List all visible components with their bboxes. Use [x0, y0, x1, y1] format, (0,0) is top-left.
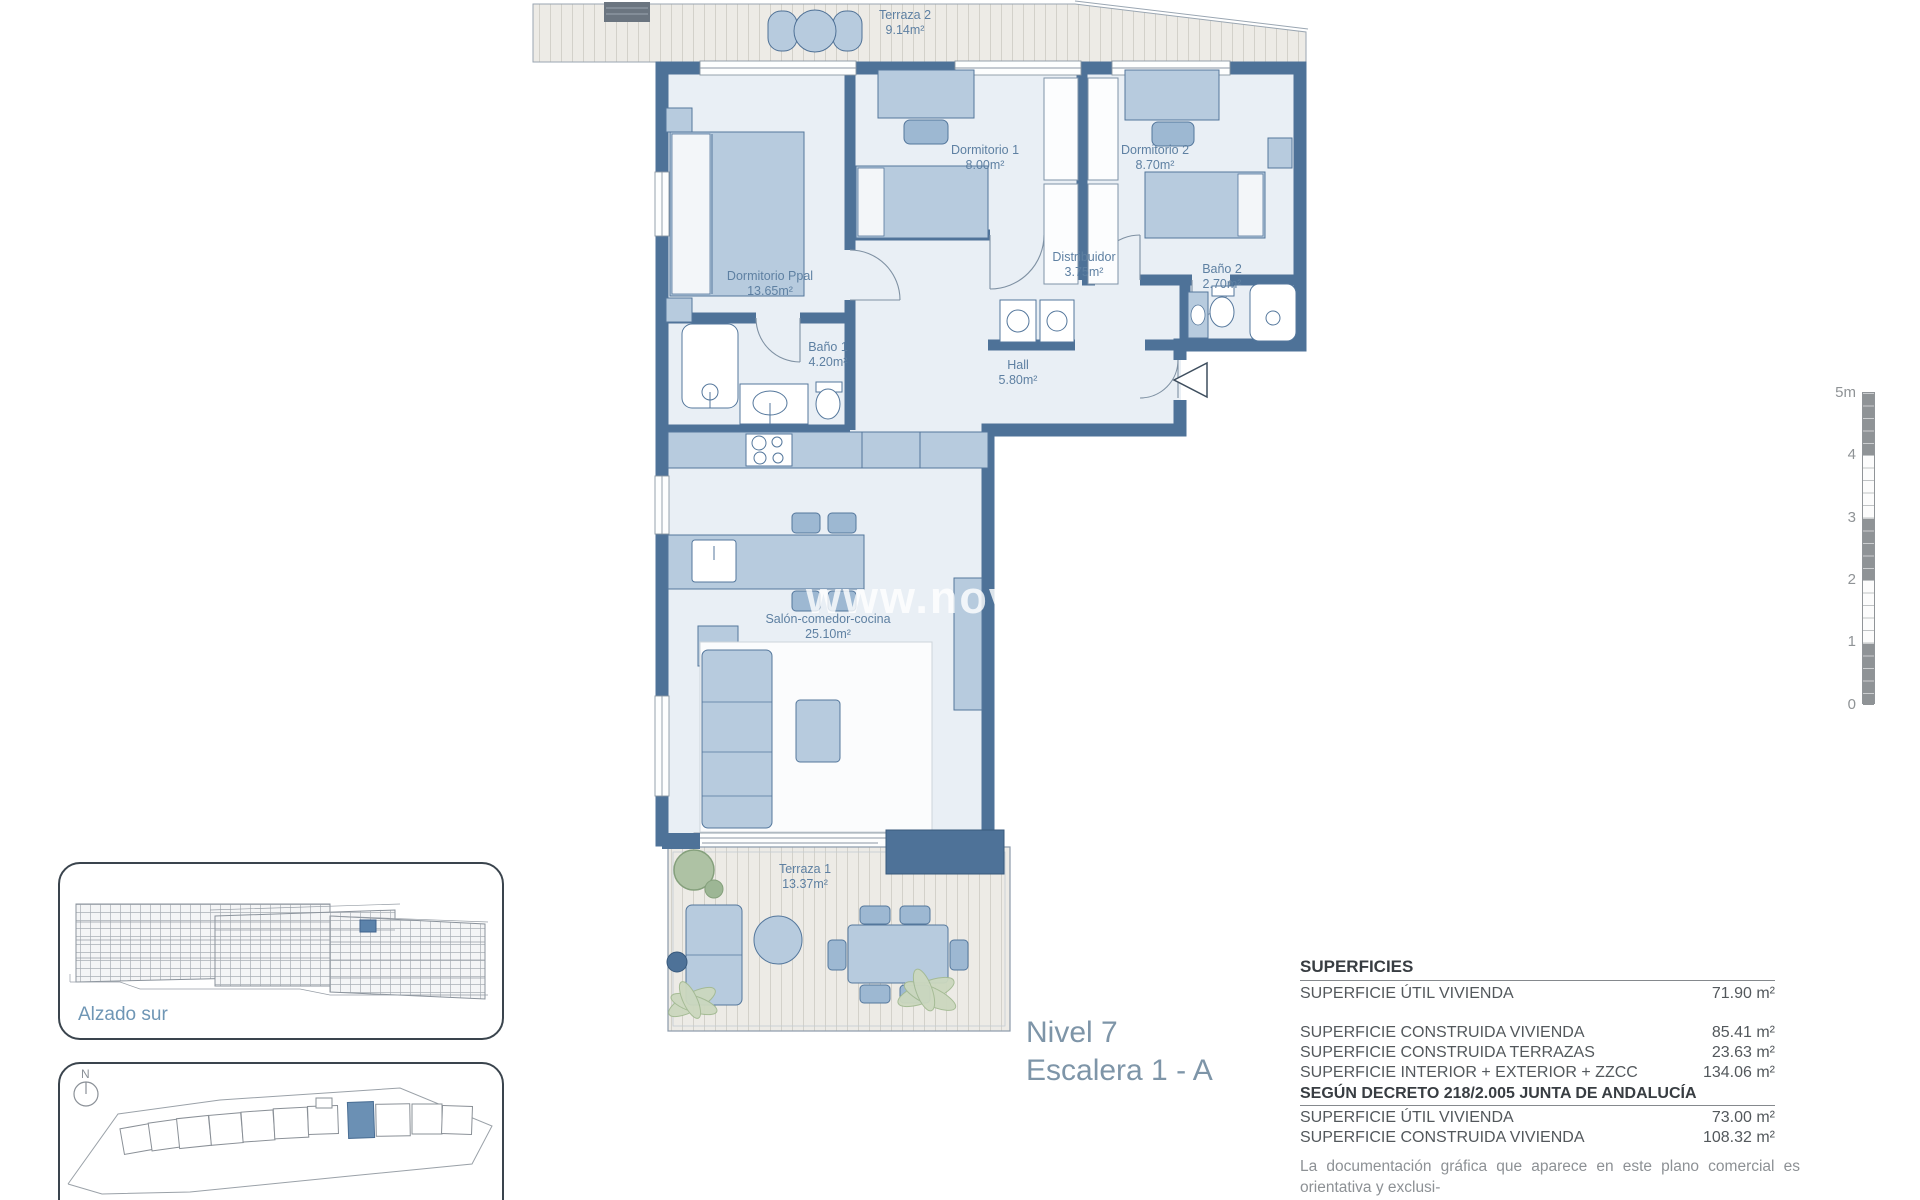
- surface-row: SUPERFICIE CONSTRUIDA VIVIENDA 108.32 m²: [1300, 1128, 1775, 1148]
- surfaces-title: SUPERFICIES: [1300, 957, 1775, 981]
- unit-stair: Escalera 1 - A: [1026, 1052, 1213, 1090]
- surface-row: SUPERFICIE CONSTRUIDA TERRAZAS 23.63 m²: [1300, 1043, 1775, 1063]
- highlighted-unit: [347, 1102, 374, 1139]
- room-label-bano-1: Baño 14.20m²: [808, 340, 848, 369]
- scale-label: 2: [1820, 571, 1856, 588]
- surface-row: SUPERFICIE ÚTIL VIVIENDA 71.90 m²: [1300, 984, 1775, 1004]
- surface-value: 23.63 m²: [1712, 1043, 1775, 1063]
- surfaces-panel: SUPERFICIES SUPERFICIE ÚTIL VIVIENDA 71.…: [1300, 957, 1775, 1148]
- surface-row: SUPERFICIE ÚTIL VIVIENDA 73.00 m²: [1300, 1108, 1775, 1128]
- surface-value: 85.41 m²: [1712, 1023, 1775, 1043]
- surface-label: SUPERFICIE CONSTRUIDA TERRAZAS: [1300, 1043, 1595, 1063]
- siteplan-box: N: [58, 1062, 504, 1200]
- surface-label: SUPERFICIE CONSTRUIDA VIVIENDA: [1300, 1128, 1585, 1148]
- scale-label: 3: [1820, 509, 1856, 526]
- room-label-hall: Hall5.80m²: [999, 358, 1038, 387]
- siteplan-drawing: N: [60, 1064, 500, 1200]
- room-label-bano-2: Baño 22.70m²: [1202, 262, 1242, 291]
- terrace-chair: [833, 11, 862, 51]
- room-label-terraza-2: Terraza 29.14m²: [879, 8, 931, 37]
- elevation-box: Alzado sur: [58, 862, 504, 1040]
- terrace-chair: [768, 11, 797, 51]
- surface-label: SUPERFICIE ÚTIL VIVIENDA: [1300, 1108, 1514, 1128]
- scale-label: 0: [1820, 696, 1856, 713]
- room-label-distribuidor: Distribuidor3.75m²: [1052, 250, 1115, 279]
- plant: [705, 880, 723, 898]
- disclaimer-line: La documentación gráfica que aparece en …: [1300, 1156, 1800, 1198]
- surface-value: 108.32 m²: [1703, 1128, 1775, 1148]
- room-label-dormitorio-1: Dormitorio 18.00m²: [951, 143, 1019, 172]
- surface-label: SUPERFICIE INTERIOR + EXTERIOR + ZZCC: [1300, 1063, 1638, 1083]
- terrace-table: [794, 10, 836, 52]
- deck-planter: [604, 2, 650, 22]
- page: Terraza 29.14m² Dormitorio Ppal13.65m² D…: [0, 0, 1920, 1200]
- highlighted-unit: [360, 920, 376, 932]
- surface-label: SUPERFICIE CONSTRUIDA VIVIENDA: [1300, 1023, 1585, 1043]
- surface-value: 73.00 m²: [1712, 1108, 1775, 1128]
- room-label-dormitorio-ppal: Dormitorio Ppal13.65m²: [727, 269, 813, 298]
- surface-value: 134.06 m²: [1703, 1063, 1775, 1083]
- room-label-dormitorio-2: Dormitorio 28.70m²: [1121, 143, 1189, 172]
- scale-label: 4: [1820, 446, 1856, 463]
- terraza-1-deck: [662, 830, 1010, 1031]
- surface-row: SUPERFICIE CONSTRUIDA VIVIENDA 85.41 m²: [1300, 1023, 1775, 1043]
- compass-icon: [74, 1082, 98, 1106]
- room-label-terraza-1: Terraza 113.37m²: [779, 862, 831, 891]
- scale-bar: [1862, 392, 1875, 704]
- scale-label: 5m: [1820, 384, 1856, 401]
- watermark: www.nov: [806, 572, 1016, 624]
- north-label: N: [81, 1067, 90, 1081]
- scale-label: 1: [1820, 633, 1856, 650]
- disclaimer-text: La documentación gráfica que aparece en …: [1300, 1156, 1800, 1200]
- surface-row: SUPERFICIE INTERIOR + EXTERIOR + ZZCC 13…: [1300, 1063, 1775, 1083]
- decree-title: SEGÚN DECRETO 218/2.005 JUNTA DE ANDALUC…: [1300, 1083, 1775, 1106]
- floor-plan-drawing: [500, 0, 1340, 1045]
- surface-value: 71.90 m²: [1712, 984, 1775, 1004]
- elevation-label: Alzado sur: [78, 1004, 168, 1026]
